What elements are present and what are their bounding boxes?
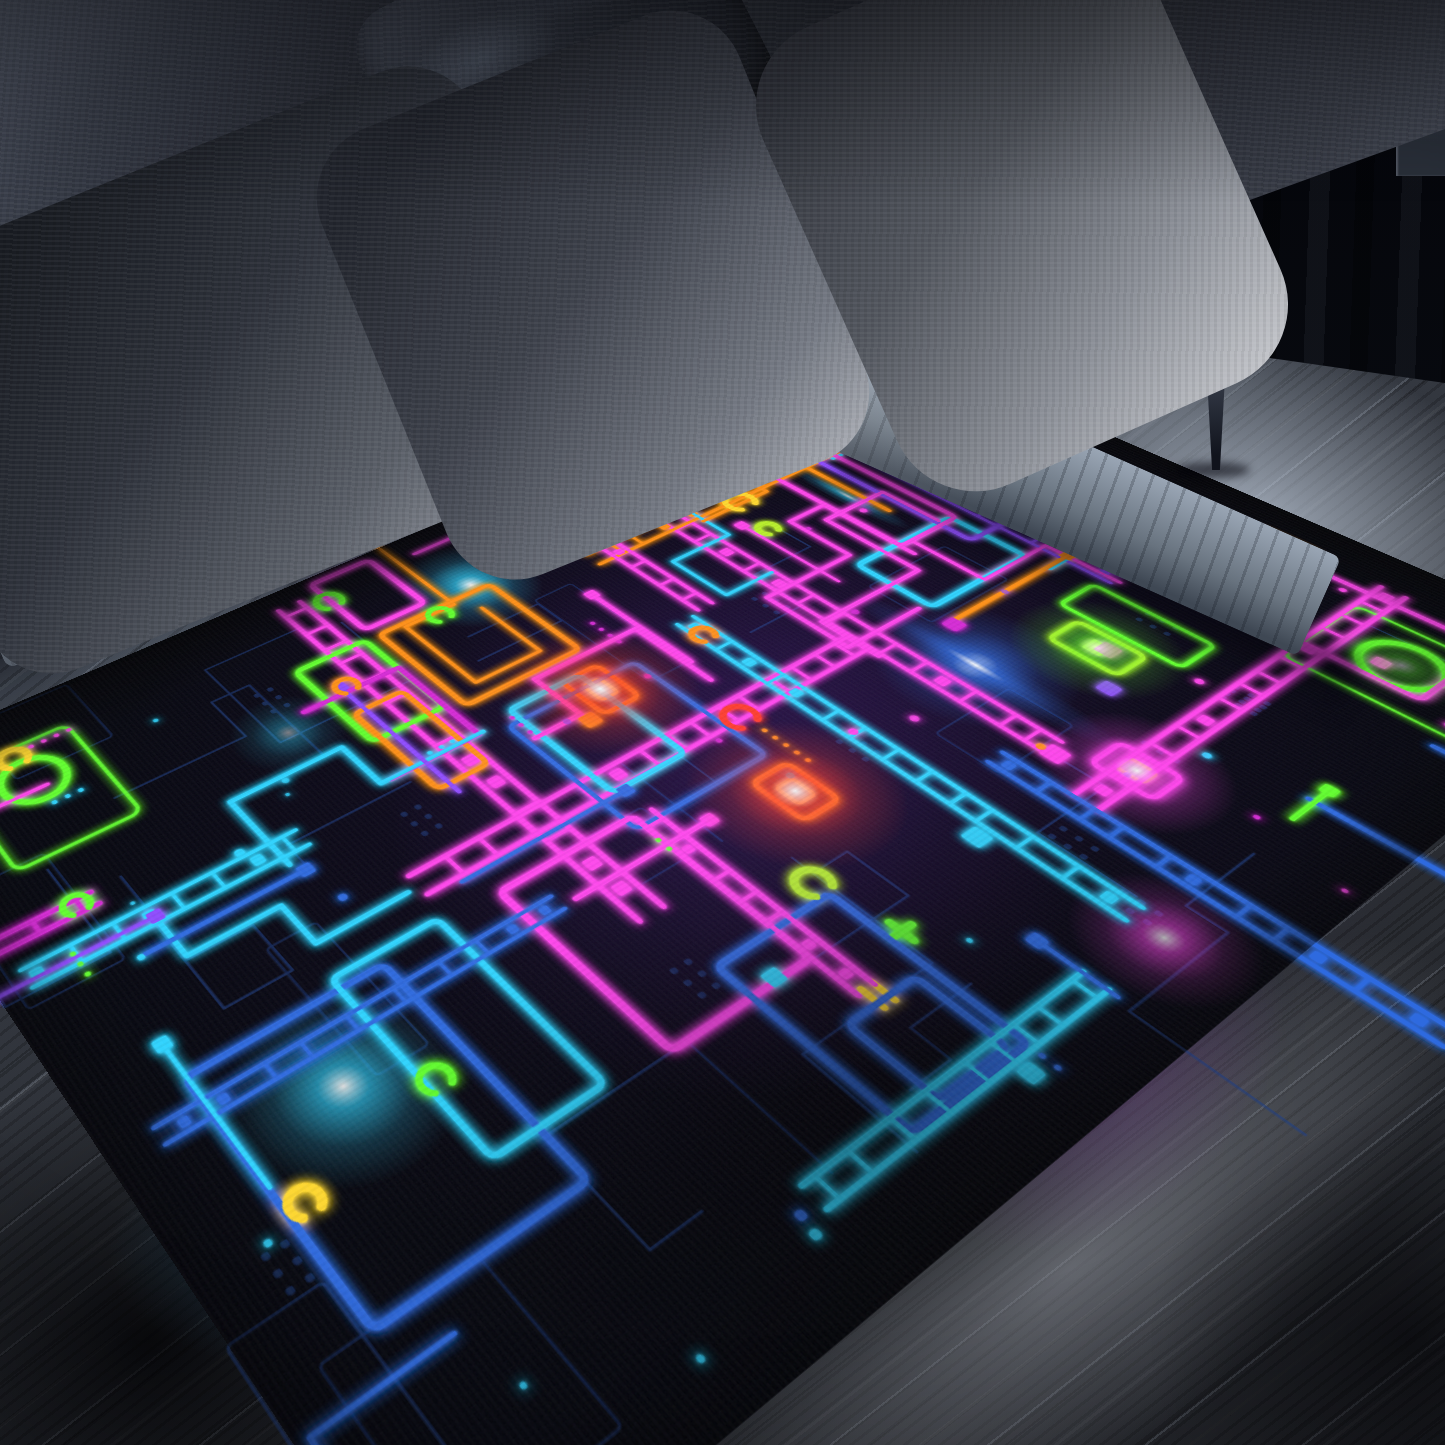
ambient-neon-glow	[240, 420, 1240, 1220]
living-room-photo	[0, 0, 1445, 1445]
